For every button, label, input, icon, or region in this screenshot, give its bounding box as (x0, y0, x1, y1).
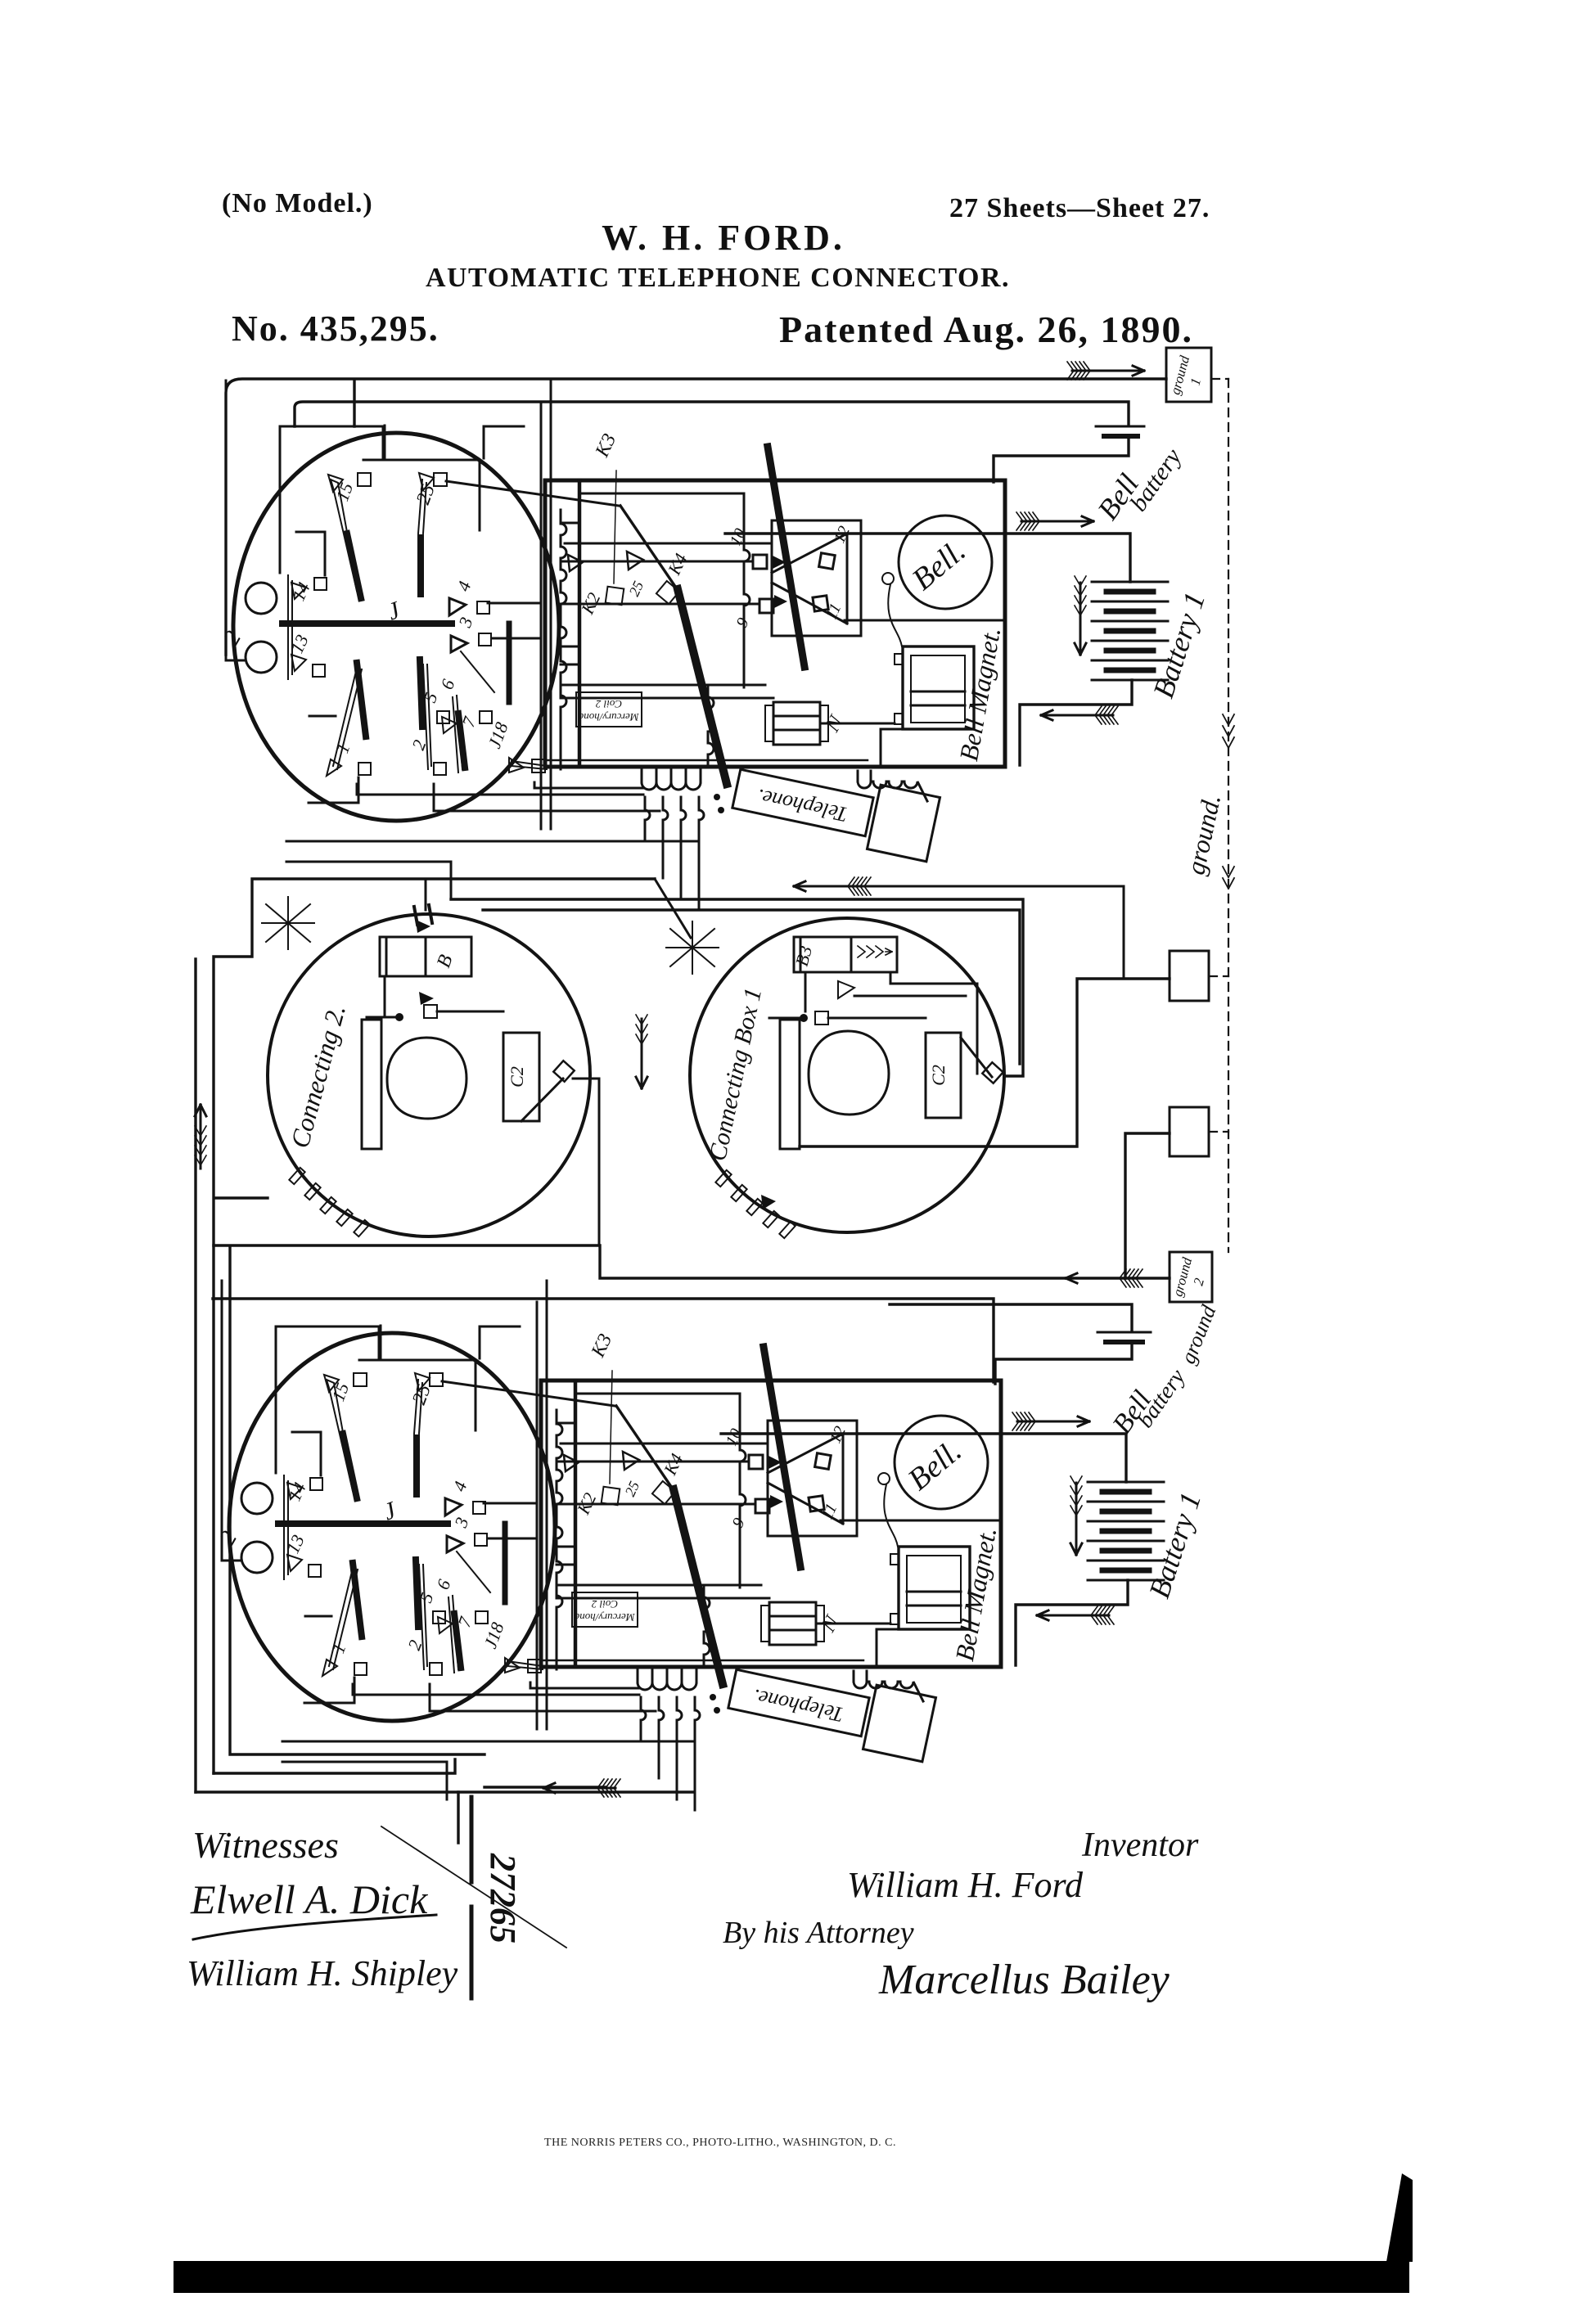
svg-text:Patented Aug. 26, 1890.: Patented Aug. 26, 1890. (779, 309, 1193, 350)
svg-text:Connecting Box 1: Connecting Box 1 (704, 985, 767, 1163)
svg-text:(No Model.): (No Model.) (222, 188, 373, 218)
svg-text:11: 11 (823, 601, 845, 622)
svg-text:25: 25 (625, 579, 647, 599)
svg-text:13: 13 (286, 632, 313, 657)
svg-text:1: 1 (1188, 376, 1205, 387)
svg-text:2: 2 (1191, 1276, 1208, 1287)
svg-text:AUTOMATIC TELEPHONE CONNECTOR.: AUTOMATIC TELEPHONE CONNECTOR. (426, 263, 1010, 293)
svg-text:10: 10 (727, 526, 750, 548)
svg-text:4: 4 (453, 579, 475, 594)
svg-text:Connecting 2.: Connecting 2. (285, 1002, 351, 1151)
svg-text:ground: ground (1167, 354, 1192, 396)
svg-text:Coil 2: Coil 2 (595, 698, 622, 710)
svg-text:Elwell A. Dick: Elwell A. Dick (190, 1876, 428, 1922)
svg-text:Witnesses: Witnesses (192, 1824, 339, 1866)
svg-text:W. H. FORD.: W. H. FORD. (602, 218, 845, 258)
svg-text:Marcellus Bailey: Marcellus Bailey (878, 1957, 1170, 2003)
svg-text:N: N (820, 710, 849, 736)
svg-text:Battery 1: Battery 1 (1147, 588, 1211, 702)
svg-text:C2: C2 (928, 1065, 949, 1086)
svg-text:By his Attorney: By his Attorney (723, 1916, 914, 1950)
svg-text:No. 435,295.: No. 435,295. (232, 309, 439, 349)
svg-text:William H. Shipley: William H. Shipley (187, 1953, 458, 1993)
svg-text:J18: J18 (484, 719, 512, 750)
svg-text:B3: B3 (791, 944, 816, 968)
svg-text:K3: K3 (591, 430, 620, 461)
svg-text:1: 1 (331, 741, 354, 756)
svg-text:Mercury/hone: Mercury/hone (579, 711, 639, 723)
svg-text:C2: C2 (507, 1066, 527, 1088)
svg-text:27 Sheets—Sheet 27.: 27 Sheets—Sheet 27. (949, 193, 1210, 223)
svg-text:27265: 27265 (483, 1853, 523, 1943)
svg-text:THE NORRIS PETERS CO., PHOTO-L: THE NORRIS PETERS CO., PHOTO-LITHO., WAS… (544, 2137, 896, 2149)
svg-text:William H. Ford: William H. Ford (847, 1865, 1084, 1905)
svg-text:6: 6 (436, 677, 458, 692)
svg-text:B: B (433, 952, 457, 971)
svg-text:3: 3 (454, 615, 477, 631)
svg-text:Bell.: Bell. (906, 534, 972, 597)
svg-text:Inventor: Inventor (1081, 1826, 1199, 1864)
svg-text:ground.: ground. (1180, 791, 1226, 877)
svg-text:ground: ground (1176, 1301, 1221, 1367)
